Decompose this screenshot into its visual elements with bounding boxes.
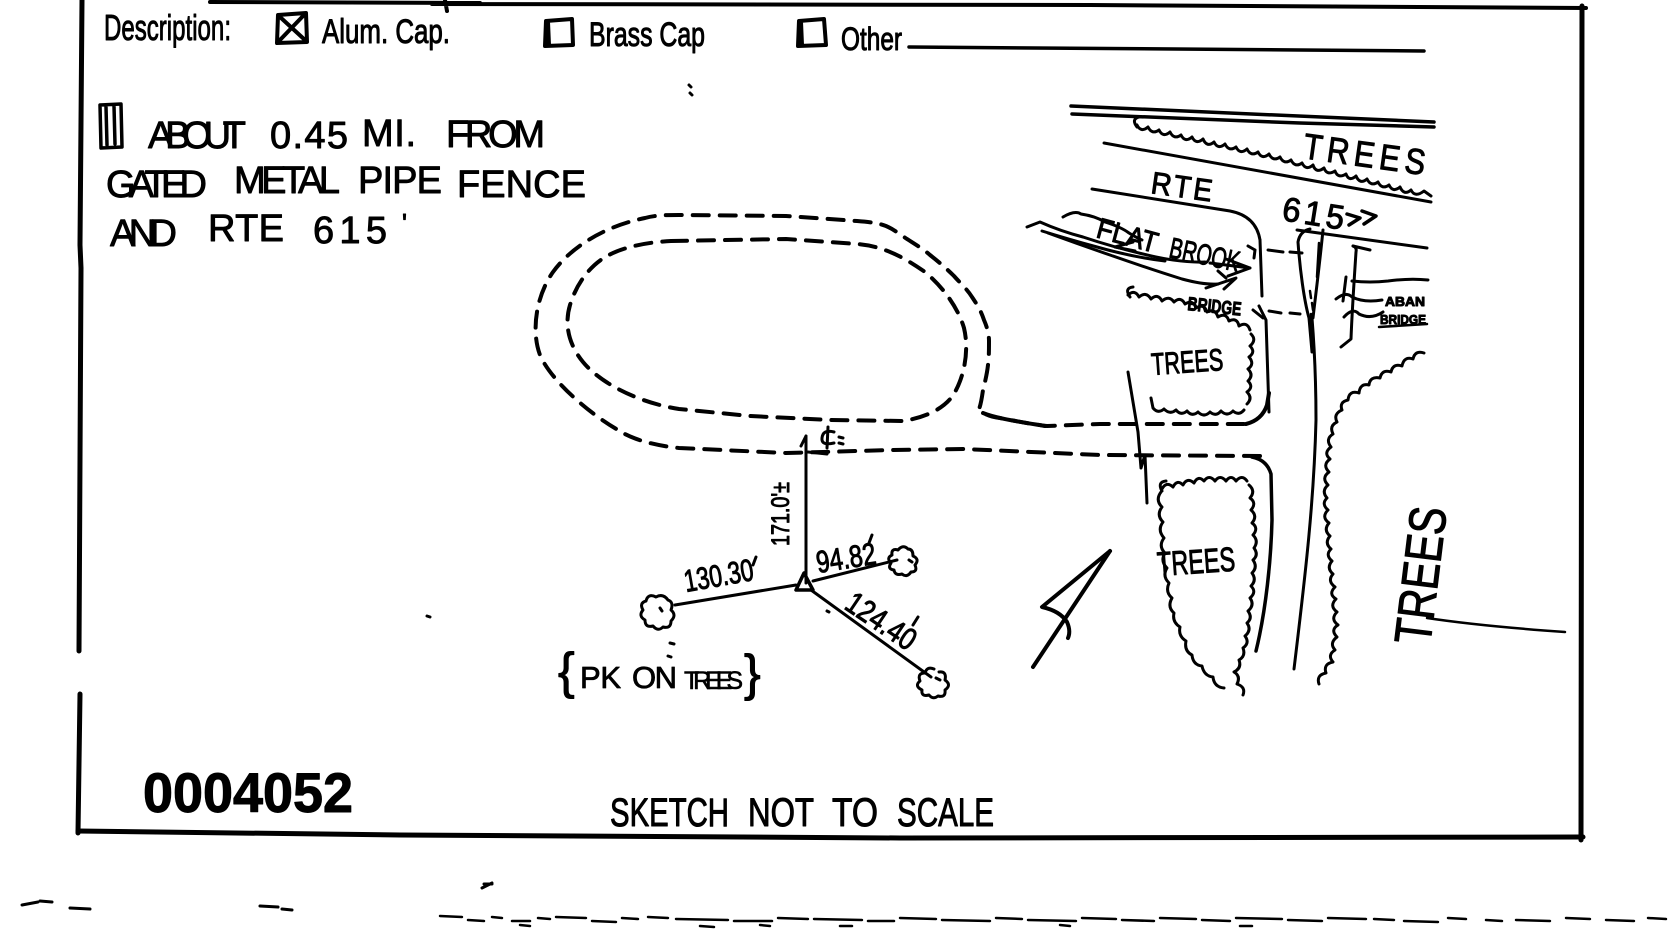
svg-text:NOT: NOT <box>748 791 814 835</box>
svg-text:SCALE: SCALE <box>897 791 994 835</box>
svg-text:{: { <box>558 643 575 699</box>
svg-text:PIPE: PIPE <box>358 160 442 202</box>
svg-text:PK: PK <box>580 660 621 695</box>
svg-text:SKETCH: SKETCH <box>610 791 729 835</box>
svg-text:': ' <box>402 208 407 238</box>
svg-text:}: } <box>744 645 761 701</box>
svg-text:GATED: GATED <box>106 164 207 206</box>
svg-text:Other: Other <box>841 21 902 57</box>
svg-text:ABAN: ABAN <box>1385 294 1425 309</box>
svg-text:0004052: 0004052 <box>143 761 353 824</box>
svg-text:RTE: RTE <box>208 208 284 250</box>
svg-text:FENCE: FENCE <box>457 164 586 206</box>
svg-text:ON: ON <box>632 660 677 695</box>
svg-text:615: 615 <box>313 210 387 252</box>
svg-text:AND: AND <box>110 213 177 255</box>
svg-text:171.0'±: 171.0'± <box>767 482 795 546</box>
svg-text:TO: TO <box>832 791 878 835</box>
svg-text:MI.: MI. <box>362 113 416 155</box>
svg-text:ABOUT: ABOUT <box>148 115 246 157</box>
svg-text:TREES: TREES <box>1156 541 1236 584</box>
svg-text:FROM: FROM <box>446 114 545 156</box>
svg-text:0.45: 0.45 <box>270 115 348 157</box>
svg-text:Alum. Cap.: Alum. Cap. <box>322 13 450 51</box>
svg-text:TREES: TREES <box>1150 342 1224 382</box>
svg-text:METAL: METAL <box>234 160 340 202</box>
svg-text:TREES: TREES <box>684 667 743 695</box>
svg-text:Description:: Description: <box>104 7 231 48</box>
svg-text:Brass Cap: Brass Cap <box>589 16 705 54</box>
